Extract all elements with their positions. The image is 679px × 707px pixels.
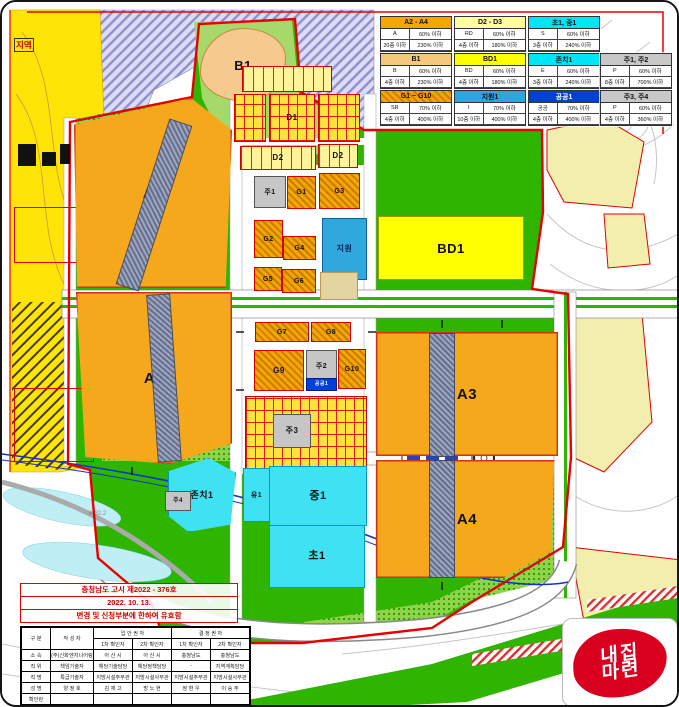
block-label-ju2: 주2 — [316, 363, 327, 370]
legend-value-cell: 360% 이하 — [630, 114, 671, 125]
legend-value-cell: 60% 이하 — [558, 29, 599, 40]
block-ju4: 주4 — [165, 491, 191, 511]
legend-value-cell: 400% 이하 — [484, 114, 525, 125]
block-label-g2: G2 — [263, 236, 273, 243]
block-g2: G2 — [254, 220, 283, 258]
block-gong1: 공공1 — [306, 378, 337, 391]
legend-value-cell: 4층 이하 — [529, 114, 558, 125]
table-cell — [94, 694, 133, 706]
legend-value-cell: SR — [381, 103, 410, 114]
block-g7: G7 — [255, 322, 309, 342]
table-cell — [211, 694, 251, 706]
gazette-notice: 충청남도 고시 제2022 - 376호2022. 10. 13.변경 및 신청… — [20, 584, 238, 623]
approval-table: 구 분작 성 자입 안 권 자결 정 권 자1차 확인자2차 확인자1차 확인자… — [20, 626, 251, 706]
block-g9: G9 — [254, 350, 304, 391]
legend-value-row: 10층 이하400% 이하 — [455, 114, 525, 125]
logo-red-blob: 내집 마련 — [571, 625, 670, 699]
legend-value-cell: 3층 이하 — [529, 40, 558, 51]
block-label-g5: G5 — [263, 276, 273, 283]
legend-value-cell: 230% 이하 — [410, 40, 451, 51]
land-use-plan-map: A1A2A3A4B1BD1D1D2D2주1G1G3G2G4지원G5G6G7G8G… — [0, 0, 679, 707]
block-label-ju1: 주1 — [264, 189, 275, 196]
legend-value-row: 4층 이하400% 이하 — [529, 114, 599, 125]
table-cell: - — [172, 661, 211, 672]
block-label-ju3: 주3 — [286, 427, 299, 435]
legend-value-cell: 230% 이하 — [410, 77, 451, 88]
table-row-label: 소 속 — [21, 650, 51, 661]
legend-title: D2 - D3 — [455, 17, 525, 29]
legend-value-cell: 4층 이하 — [455, 40, 484, 51]
block-g10: G10 — [338, 349, 366, 389]
notice-line-3: 변경 및 신청부분에 한하여 유효함 — [20, 609, 238, 623]
legend-value-cell: 공공 — [529, 103, 558, 114]
table-row: 소 속(주)신화엔지니어링아 산 시아 산 시충청남도충청남도 — [21, 650, 250, 661]
legend-value-row: P60% 이하 — [601, 66, 671, 77]
legend-value-cell: RD — [455, 29, 484, 40]
block-g4: G4 — [283, 236, 316, 260]
legend-item-5: BD1BD60% 이하4층 이하180% 이하 — [454, 53, 526, 89]
table-cell: 지방시설주무관 — [172, 672, 211, 683]
block-cho1: 초1 — [269, 525, 365, 588]
legend-value-cell: 60% 이하 — [630, 103, 671, 114]
legend-value-row: 공공70% 이하 — [529, 103, 599, 114]
legend-value-cell: 8층 이하 — [601, 77, 630, 88]
table-header-gyeoljeong: 결 정 권 자 — [172, 627, 251, 639]
table-cell: 김 재 고 — [94, 683, 133, 694]
legend-title: 공공1 — [529, 91, 599, 103]
block-label-g4: G4 — [294, 245, 304, 252]
table-cell: 방 노 현 — [133, 683, 172, 694]
legend-item-11: 주3, 주4P60% 이하4층 이하360% 이하 — [600, 90, 672, 126]
legend-item-3: 초1, 중1S60% 이하3층 이하240% 이하 — [528, 16, 600, 52]
legend-value-row: 4층 이하180% 이하 — [455, 77, 525, 88]
table-row-label: 직 위 — [21, 661, 51, 672]
legend-value-row: 4층 이하180% 이하 — [455, 40, 525, 51]
block-yu1: 유1 — [243, 468, 270, 522]
legend-value-cell: 60% 이하 — [484, 66, 525, 77]
table-cell: 지방시설사무관 — [133, 672, 172, 683]
block-label-g10: G10 — [345, 366, 360, 373]
legend-value-row: BD60% 이하 — [455, 66, 525, 77]
block-label-d2a: D2 — [272, 154, 283, 162]
table-cell: 지방시설사무관 — [211, 672, 251, 683]
table-cell: 해당기술담당 — [94, 661, 133, 672]
block-label-g6: G6 — [294, 278, 304, 285]
block-label-jiwon: 지원 — [337, 245, 353, 253]
table-cell — [51, 694, 94, 706]
green-band-a4 — [429, 460, 455, 578]
table-row: 직 위책임기술자해당기술담당해당정책담당-지역계획담당 — [21, 661, 250, 672]
legend-value-row: 4층 이하230% 이하 — [381, 77, 451, 88]
block-label-g1: G1 — [296, 189, 306, 196]
legend-value-row: 3층 이하240% 이하 — [529, 77, 599, 88]
legend-value-cell: 4층 이하 — [601, 114, 630, 125]
block-label-a4: A4 — [457, 512, 477, 527]
table-subheader: 1차 확인자 — [172, 639, 211, 650]
legend-value-row: P60% 이하 — [601, 103, 671, 114]
block-label-g9: G9 — [273, 367, 285, 375]
block-d2a: D2 — [240, 146, 316, 170]
legend-value-row: I70% 이하 — [455, 103, 525, 114]
block-label-jonchi1: 존치1 — [190, 491, 213, 500]
legend-value-cell: 180% 이하 — [484, 40, 525, 51]
legend-value-cell: 240% 이하 — [558, 77, 599, 88]
legend-item-7: 주1, 주2P60% 이하8층 이하700% 이하 — [600, 53, 672, 89]
legend-value-cell: 60% 이하 — [630, 66, 671, 77]
table-subheader: 2차 확인자 — [211, 639, 251, 650]
table-cell: 특급기술자 — [51, 672, 94, 683]
legend-value-cell: 60% 이하 — [484, 29, 525, 40]
table-cell: 지역계획담당 — [211, 661, 251, 672]
legend-item-8: G1 ~ G10SR70% 이하4층 이하400% 이하 — [380, 90, 452, 126]
block-a3: A3 — [376, 332, 558, 456]
legend-title: 지원1 — [455, 91, 525, 103]
building-footprint — [18, 144, 36, 166]
legend-value-cell: S — [529, 29, 558, 40]
table-row-label: 직 명 — [21, 672, 51, 683]
legend-title: A2 - A4 — [381, 17, 451, 29]
table-cell — [172, 694, 211, 706]
legend-item-9: 지원1I70% 이하10층 이하400% 이하 — [454, 90, 526, 126]
table-subheader: 2차 확인자 — [133, 639, 172, 650]
legend-value-cell: 60% 이하 — [558, 66, 599, 77]
logo-stamp: 내집 마련 — [562, 618, 678, 707]
legend-value-cell: P — [601, 103, 630, 114]
block-label-gong1: 공공1 — [315, 382, 328, 387]
legend-title: 주1, 주2 — [601, 54, 671, 66]
block-g3: G3 — [319, 173, 360, 209]
table-cell: 충청남도 — [211, 650, 251, 661]
block-a4: A4 — [376, 460, 558, 578]
elevation-label: ※ 32.2 — [88, 510, 106, 517]
block-ju1: 주1 — [254, 176, 286, 208]
legend-value-cell: 3층 이하 — [529, 77, 558, 88]
unlabeled-lot-grid — [320, 272, 358, 300]
block-jiwon: 지원 — [322, 218, 367, 280]
legend-item-4: B1B60% 이하4층 이하230% 이하 — [380, 53, 452, 89]
table-row: 직 명특급기술자지방시설주무관지방시설사무관지방시설주무관지방시설사무관 — [21, 672, 250, 683]
block-label-g7: G7 — [277, 329, 287, 336]
legend-item-2: D2 - D3RD60% 이하4층 이하180% 이하 — [454, 16, 526, 52]
table-row-label: 확인란 — [21, 694, 51, 706]
table-cell: 아 산 시 — [94, 650, 133, 661]
block-label-cho1: 초1 — [308, 551, 325, 562]
block-jung1: 중1 — [269, 466, 367, 526]
logo-text-line2: 마련 — [601, 660, 640, 682]
legend-value-cell: P — [601, 66, 630, 77]
green-band-a3 — [429, 333, 455, 457]
table-cell: 충청남도 — [172, 650, 211, 661]
block-label-g8: G8 — [326, 329, 336, 336]
legend-value-cell: 10층 이하 — [455, 114, 484, 125]
legend-value-cell: I — [455, 103, 484, 114]
legend-value-row: RD60% 이하 — [455, 29, 525, 40]
legend-title: 주3, 주4 — [601, 91, 671, 103]
legend-value-row: 3층 이하240% 이하 — [529, 40, 599, 51]
block-label-d1: D1 — [286, 114, 297, 122]
legend-value-cell: 180% 이하 — [484, 77, 525, 88]
legend-value-cell: 20층 이하 — [381, 40, 410, 51]
legend-title: B1 — [381, 54, 451, 66]
legend-value-cell: B — [381, 66, 410, 77]
table-header-author: 작 성 자 — [51, 627, 94, 650]
legend-item-1: A2 - A4A60% 이하20층 이하230% 이하 — [380, 16, 452, 52]
block-g6: G6 — [282, 269, 316, 293]
legend-value-row: SR70% 이하 — [381, 103, 451, 114]
notice-line-1: 충청남도 고시 제2022 - 376호 — [20, 583, 238, 597]
legend-value-cell: 60% 이하 — [410, 66, 451, 77]
block-label-yu1: 유1 — [251, 492, 262, 499]
legend-value-row: S60% 이하 — [529, 29, 599, 40]
legend-value-cell: 700% 이하 — [630, 77, 671, 88]
table-subheader: 1차 확인자 — [94, 639, 133, 650]
notice-line-2: 2022. 10. 13. — [20, 596, 238, 610]
legend-value-row: 20층 이하230% 이하 — [381, 40, 451, 51]
legend-value-cell: 60% 이하 — [410, 29, 451, 40]
table-cell — [133, 694, 172, 706]
block-label-ju4: 주4 — [173, 498, 183, 504]
legend-value-row: A60% 이하 — [381, 29, 451, 40]
red-outline-parcel — [14, 388, 94, 462]
table-cell: 아 산 시 — [133, 650, 172, 661]
legend-value-cell: 4층 이하 — [381, 77, 410, 88]
block-g5: G5 — [254, 267, 282, 291]
legend-value-cell: BD — [455, 66, 484, 77]
legend-value-cell: 240% 이하 — [558, 40, 599, 51]
legend-item-6: 존치1E60% 이하3층 이하240% 이하 — [528, 53, 600, 89]
unlabeled-lot-grid — [318, 94, 360, 142]
block-label-a3: A3 — [457, 387, 477, 402]
legend-value-row: 8층 이하700% 이하 — [601, 77, 671, 88]
table-cell: 이 승 주 — [211, 683, 251, 694]
legend-title: 초1, 중1 — [529, 17, 599, 29]
legend-value-row: E60% 이하 — [529, 66, 599, 77]
legend-value-cell: A — [381, 29, 410, 40]
legend-value-row: 4층 이하360% 이하 — [601, 114, 671, 125]
unlabeled-lot-grid — [234, 94, 266, 142]
legend-value-cell: 70% 이하 — [558, 103, 599, 114]
block-ju3: 주3 — [273, 414, 311, 448]
legend-value-row: B60% 이하 — [381, 66, 451, 77]
block-g1: G1 — [287, 176, 316, 209]
table-header-ipan: 입 안 권 자 — [94, 627, 172, 639]
block-bd1: BD1 — [378, 216, 524, 280]
legend-value-cell: 4층 이하 — [455, 77, 484, 88]
block-g8: G8 — [311, 322, 351, 342]
legend-value-cell: 400% 이하 — [410, 114, 451, 125]
legend-title: BD1 — [455, 54, 525, 66]
building-footprint — [42, 152, 56, 166]
table-cell: 정 환 우 — [172, 683, 211, 694]
block-label-d2b: D2 — [332, 152, 343, 160]
legend-value-cell: E — [529, 66, 558, 77]
table-row: 성 명양 정 호김 재 고방 노 현정 환 우이 승 주 — [21, 683, 250, 694]
block-label-g3: G3 — [334, 188, 344, 195]
block-label-bd1: BD1 — [437, 242, 465, 255]
unlabeled-lot-grid — [242, 66, 332, 92]
table-cell: 양 정 호 — [51, 683, 94, 694]
legend-title: 존치1 — [529, 54, 599, 66]
building-footprint — [60, 144, 70, 164]
block-d1: D1 — [269, 94, 315, 142]
block-label-jung1: 중1 — [309, 491, 326, 502]
table-header-gubun: 구 분 — [21, 627, 51, 650]
legend-value-cell: 70% 이하 — [410, 103, 451, 114]
district-label: 지역 — [14, 38, 34, 52]
legend-value-cell: 400% 이하 — [558, 114, 599, 125]
table-cell: 해당정책담당 — [133, 661, 172, 672]
table-row: 확인란 — [21, 694, 250, 706]
legend-value-cell: 4층 이하 — [381, 114, 410, 125]
legend-title: G1 ~ G10 — [381, 91, 451, 103]
table-row-label: 성 명 — [21, 683, 51, 694]
legend-value-row: 4층 이하400% 이하 — [381, 114, 451, 125]
block-d2b: D2 — [318, 144, 358, 168]
table-cell: 지방시설주무관 — [94, 672, 133, 683]
table-cell: (주)신화엔지니어링 — [51, 650, 94, 661]
legend-item-10: 공공1공공70% 이하4층 이하400% 이하 — [528, 90, 600, 126]
table-cell: 책임기술자 — [51, 661, 94, 672]
legend-value-cell: 70% 이하 — [484, 103, 525, 114]
